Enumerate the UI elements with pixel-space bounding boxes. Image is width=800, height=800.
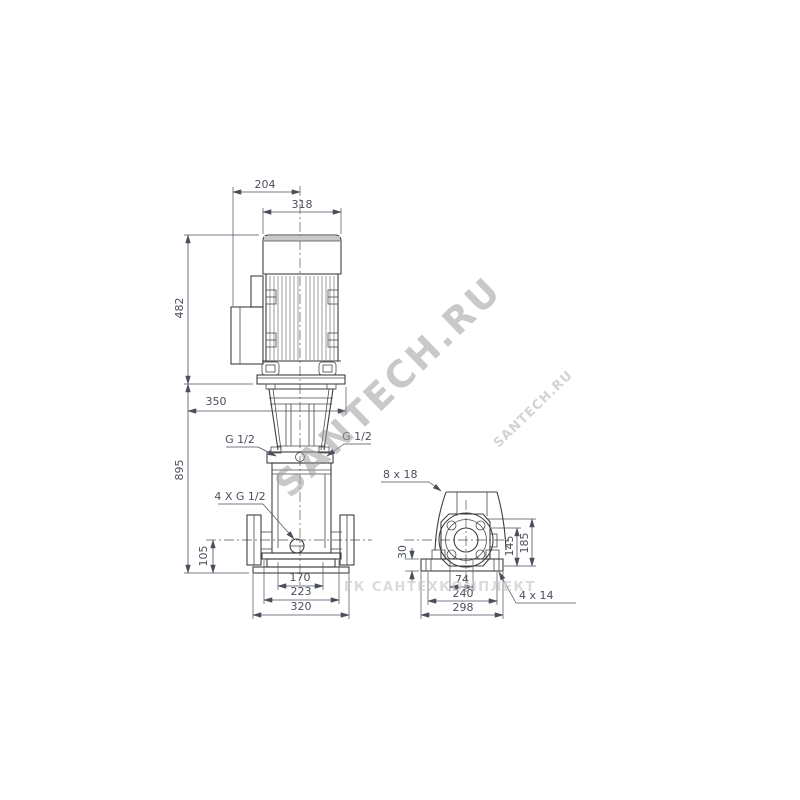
dim-flange-height-label: 145 [503, 536, 516, 557]
front-view: 204 318 482 895 350 105 170 223 320 G 1/… [173, 178, 372, 619]
dim-base-mid-label: 223 [291, 585, 312, 598]
fan-cover-cap [264, 236, 340, 241]
side-foot-right [486, 550, 499, 559]
terminal-box-conduit [251, 276, 263, 307]
dim-pump-height-label: 895 [173, 460, 186, 481]
dim-base-thickness-label: 30 [396, 545, 409, 559]
motor-body [266, 274, 338, 361]
watermark-secondary: SANTECH.RU [491, 368, 576, 451]
pump-base [253, 553, 349, 573]
dim-port-height-label: 105 [197, 546, 210, 567]
dim-base-outer-label: 320 [291, 600, 312, 613]
motor-stool-plate [257, 375, 345, 384]
motor-side-rails [266, 290, 338, 347]
motor-fins [270, 276, 334, 360]
dim-motor-width-label: 318 [292, 198, 313, 211]
dim-motor-height-label: 482 [173, 298, 186, 319]
dim-base-width-label: 298 [453, 601, 474, 614]
port-left-label: G 1/2 [225, 433, 255, 446]
drawing-canvas: 204 318 482 895 350 105 170 223 320 G 1/… [0, 0, 800, 800]
dim-top-width-label: 204 [255, 178, 276, 191]
side-base-plate [421, 559, 503, 571]
pump-dimensional-drawing: 204 318 482 895 350 105 170 223 320 G 1/… [0, 0, 800, 800]
slots-label: 8 x 18 [383, 468, 418, 481]
terminal-box [231, 307, 263, 364]
dim-base-inner-label: 170 [290, 571, 311, 584]
plugs-label: 4 X G 1/2 [214, 490, 265, 503]
watermark-footer: ГК САНТЕХКОМПЛЕКТ [344, 580, 536, 595]
dim-top-height-label: 185 [518, 533, 531, 554]
motor-foot-bolts [262, 362, 336, 375]
dim-stool-width-label: 350 [206, 395, 227, 408]
side-view: 8 x 18 30 145 185 74 240 298 4 x 14 [381, 468, 576, 619]
